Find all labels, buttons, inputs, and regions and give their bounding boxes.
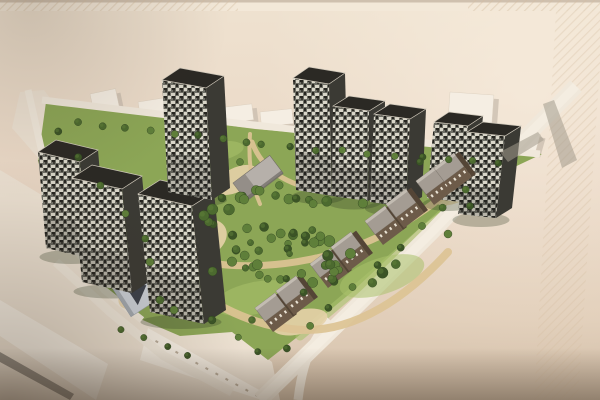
photo-vignette: [0, 0, 600, 400]
masterplan-scene: [0, 0, 600, 400]
masterplan-photo: [0, 0, 600, 400]
